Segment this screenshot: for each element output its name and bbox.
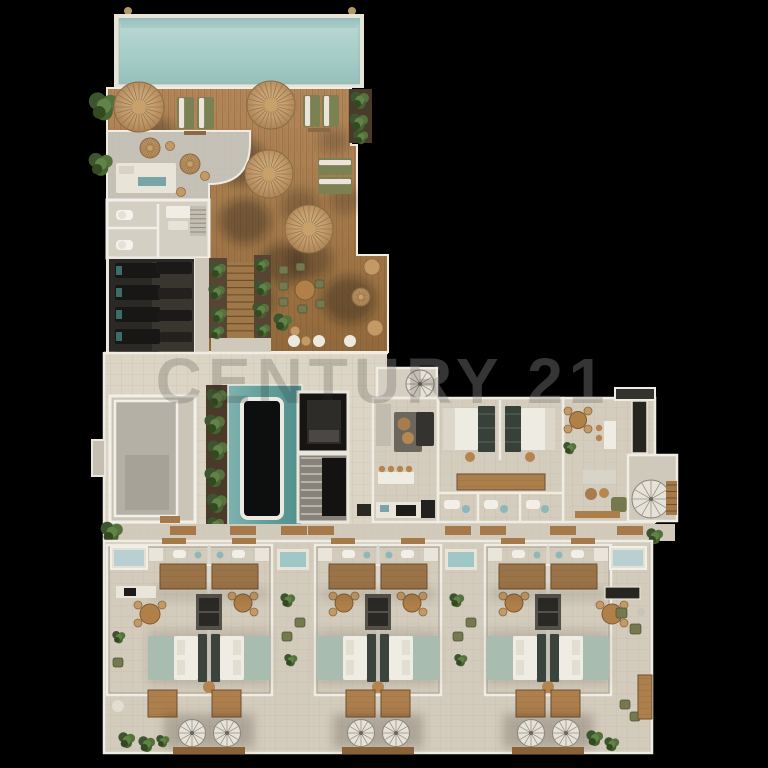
svg-text:CENTURY 21: CENTURY 21 [156,345,611,417]
